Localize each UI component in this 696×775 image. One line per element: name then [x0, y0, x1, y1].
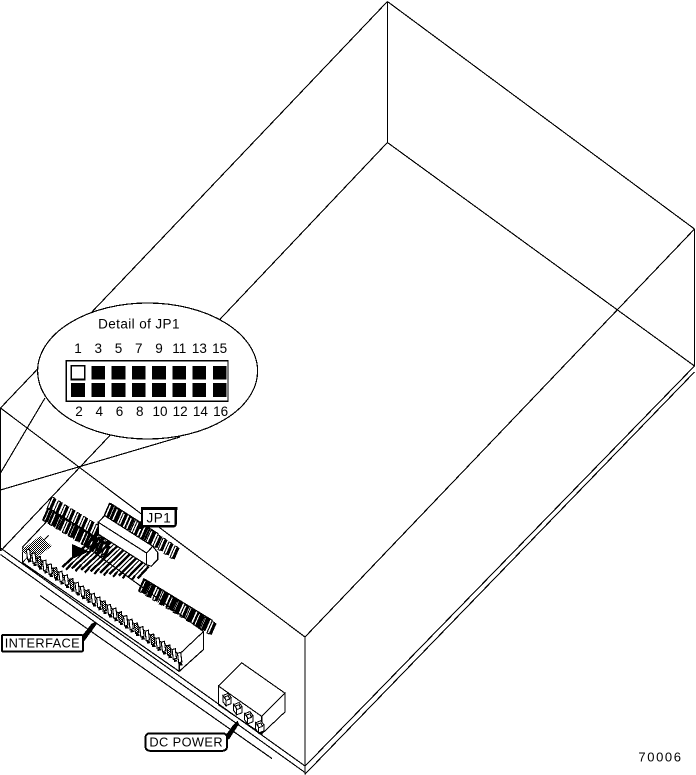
svg-text:9: 9	[155, 341, 163, 356]
svg-text:DC POWER: DC POWER	[149, 734, 223, 749]
svg-text:14: 14	[193, 404, 209, 419]
svg-text:5: 5	[115, 341, 123, 356]
svg-text:JP1: JP1	[147, 510, 172, 525]
svg-text:13: 13	[192, 341, 207, 356]
svg-text:3: 3	[94, 341, 102, 356]
svg-text:70006: 70006	[638, 750, 682, 765]
svg-text:1: 1	[74, 341, 82, 356]
svg-text:15: 15	[212, 341, 227, 356]
svg-text:8: 8	[136, 404, 144, 419]
svg-text:2: 2	[75, 404, 83, 419]
svg-text:10: 10	[152, 404, 167, 419]
svg-text:6: 6	[116, 404, 124, 419]
svg-text:7: 7	[135, 341, 143, 356]
svg-text:Detail of JP1: Detail of JP1	[98, 317, 180, 332]
svg-text:4: 4	[95, 404, 103, 419]
svg-text:INTERFACE: INTERFACE	[5, 636, 80, 651]
svg-text:16: 16	[213, 404, 228, 419]
svg-text:11: 11	[172, 341, 186, 356]
svg-text:12: 12	[173, 404, 188, 419]
